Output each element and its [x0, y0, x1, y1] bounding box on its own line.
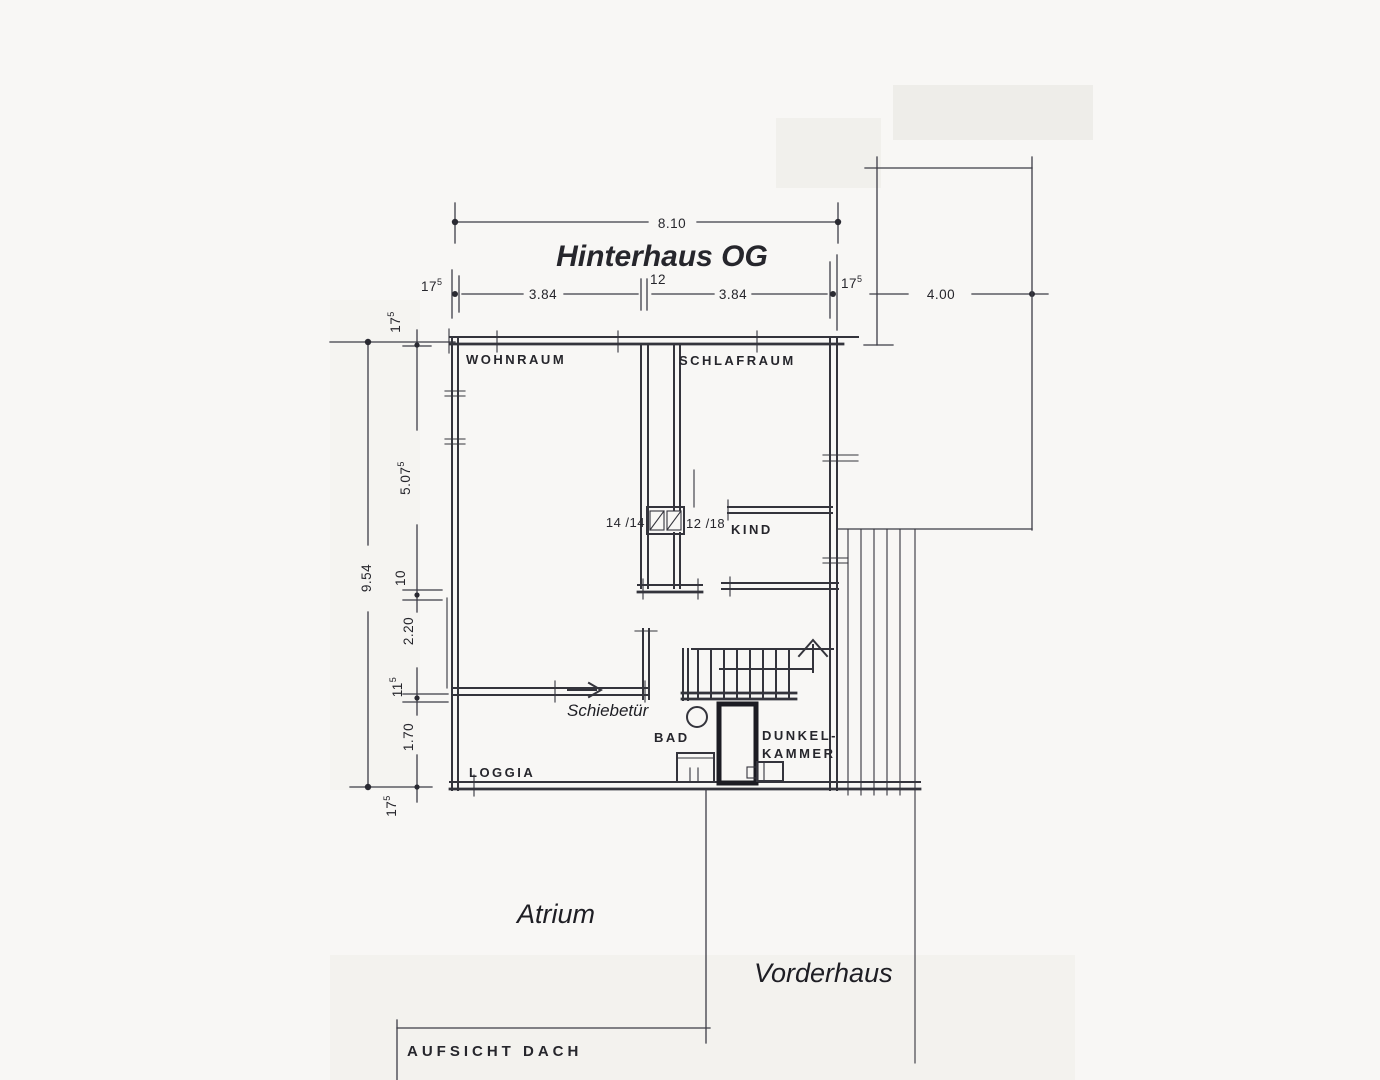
- duct-shaft: [719, 704, 756, 783]
- dim-wall-mid: 12: [650, 272, 666, 287]
- stair-direction-arrow-icon: [799, 640, 827, 672]
- aufsicht-dach-label: AUFSICHT DACH: [407, 1043, 582, 1060]
- dim-seg-right: 3.84: [719, 287, 747, 302]
- annex-outline: [864, 157, 1032, 530]
- dim-wall-left: 175: [421, 277, 443, 294]
- sliding-door-label: Schiebetür: [567, 701, 650, 720]
- bathtub-icon: [677, 753, 714, 782]
- exterior-walls: [445, 329, 920, 796]
- floor-plan-scan: Hinterhaus OG WOHNRAUM SCHLAFRAUM KIND B…: [0, 0, 1380, 1080]
- staircase: [682, 640, 833, 700]
- flue-label-12-18: 12 /18: [686, 516, 725, 531]
- dim-seg-lower: 1.70: [401, 723, 416, 751]
- dim-seg-mid: 2.20: [401, 617, 416, 645]
- floor-plan-drawing: Hinterhaus OG WOHNRAUM SCHLAFRAUM KIND B…: [0, 0, 1380, 1080]
- chimney-flues: [647, 507, 684, 534]
- dim-wall-bottom-left: 175: [382, 795, 399, 817]
- vorderhaus-label: Vorderhaus: [754, 958, 893, 988]
- room-label-wohnraum: WOHNRAUM: [466, 352, 566, 367]
- dim-wall-right: 175: [841, 274, 863, 291]
- dim-total-width: 8.10: [658, 216, 686, 231]
- washbasin-icon: [687, 707, 707, 727]
- flue-label-14-14: 14 /14: [606, 515, 645, 530]
- dim-seg-left: 3.84: [529, 287, 557, 302]
- room-label-loggia: LOGGIA: [469, 765, 535, 780]
- dim-annex-width: 4.00: [927, 287, 955, 302]
- room-label-kind: KIND: [731, 522, 773, 537]
- plan-title: Hinterhaus OG: [556, 240, 768, 273]
- paper-artifacts: [330, 85, 1093, 1080]
- dim-wall-10: 10: [393, 570, 408, 586]
- bath-fixtures: [677, 704, 783, 783]
- darkroom-sink-icon: [747, 762, 783, 781]
- room-label-dunkelkammer-2: KAMMER: [762, 746, 836, 761]
- dim-total-height: 9.54: [359, 564, 374, 592]
- room-label-dunkelkammer-1: DUNKEL-: [762, 728, 838, 743]
- room-label-bad: BAD: [654, 730, 690, 745]
- room-label-schlafraum: SCHLAFRAUM: [679, 353, 796, 368]
- atrium-label: Atrium: [515, 899, 595, 929]
